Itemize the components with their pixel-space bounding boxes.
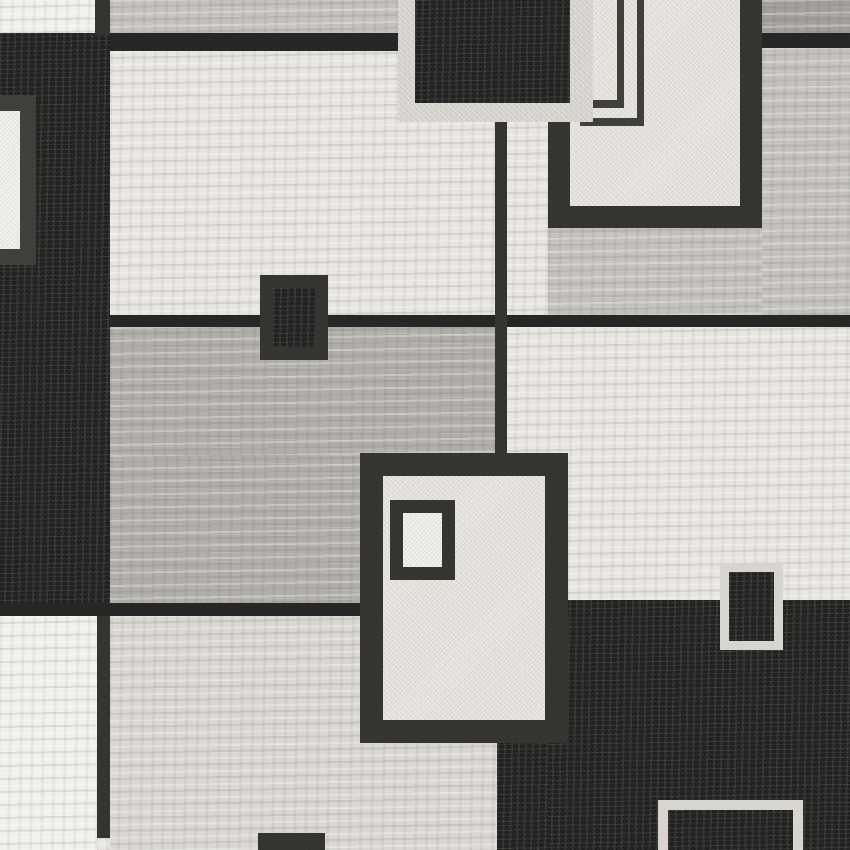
left-edge-framed-square xyxy=(0,95,36,265)
upper-cross-band xyxy=(110,315,850,327)
bottom-left-cream-block xyxy=(0,616,97,850)
bottom-left-vertical-line xyxy=(97,616,110,838)
middle-gray-panel-lower xyxy=(110,455,360,605)
top-gray-strip-underline xyxy=(110,33,398,51)
top-black-rect xyxy=(415,0,570,103)
center-inner-square xyxy=(390,500,455,580)
right-small-framed-rect xyxy=(720,563,783,650)
gray-below-bordered-panel xyxy=(548,225,762,315)
mid-small-black-rect xyxy=(260,275,328,360)
top-left-corner-divider xyxy=(95,0,110,35)
bottom-edge-dark-piece xyxy=(258,833,325,850)
rug-pattern-photo xyxy=(0,0,850,850)
right-light-gray-panel xyxy=(762,48,850,315)
bottom-framed-rect xyxy=(658,800,803,850)
top-left-white-corner xyxy=(0,0,95,33)
top-right-gray-corner xyxy=(762,0,850,33)
pinstripe-vertical-1 xyxy=(617,0,624,108)
lower-cross-band xyxy=(0,603,400,616)
bottom-right-black-extension xyxy=(497,740,548,850)
top-gray-strip xyxy=(110,0,398,33)
center-framed-panel xyxy=(360,453,568,743)
center-vertical-line xyxy=(495,122,507,455)
pinstripe-vertical-2 xyxy=(637,0,644,126)
top-right-corner-underline xyxy=(762,33,850,48)
